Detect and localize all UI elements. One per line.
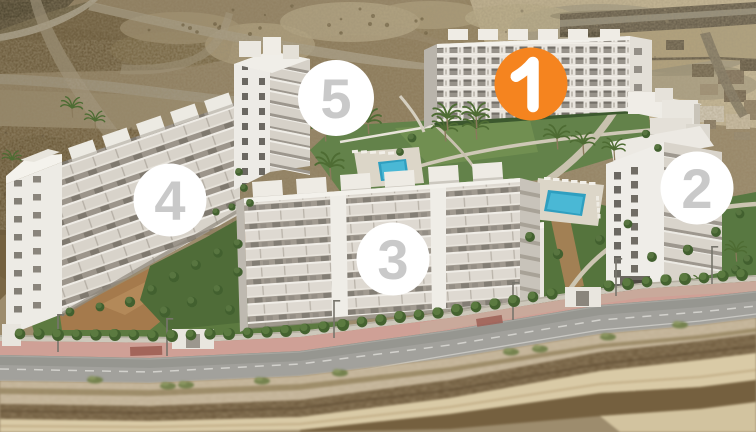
svg-text:5: 5	[320, 67, 351, 130]
svg-text:3: 3	[377, 228, 408, 291]
svg-text:4: 4	[154, 169, 185, 232]
svg-text:2: 2	[681, 157, 712, 220]
